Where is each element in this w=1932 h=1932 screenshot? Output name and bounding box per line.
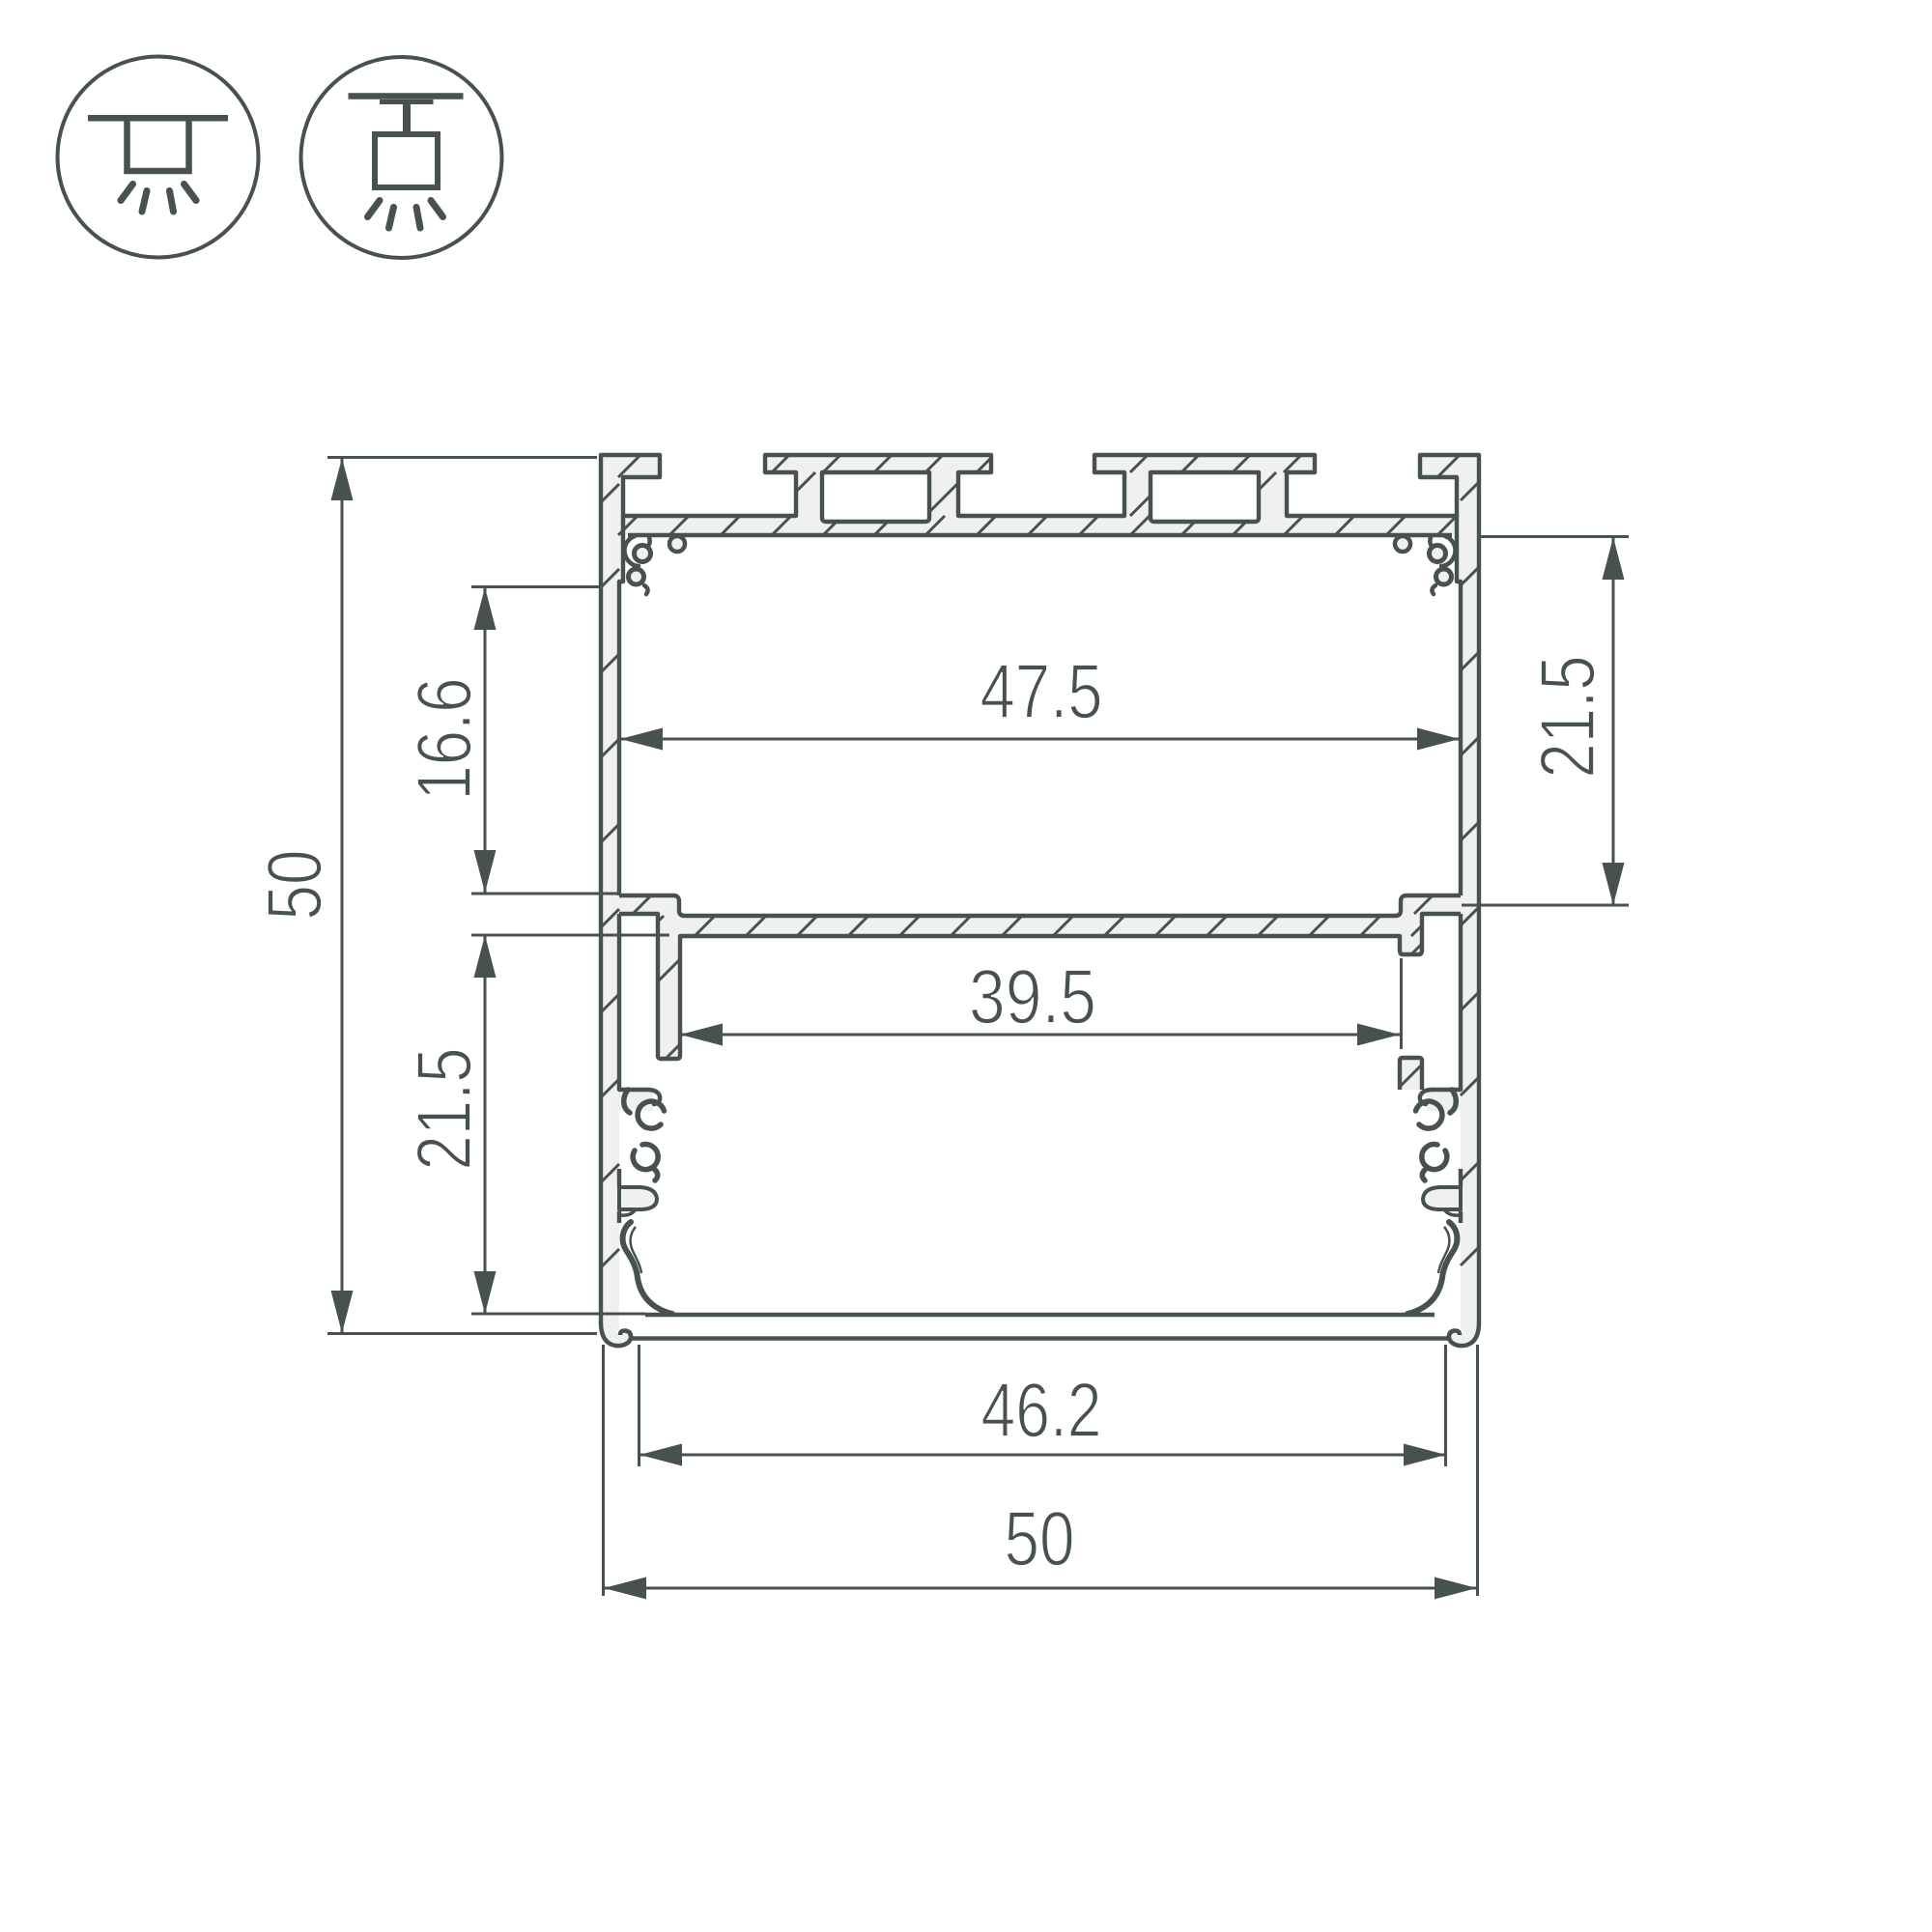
svg-text:21.5: 21.5: [1524, 656, 1610, 779]
svg-text:21.5: 21.5: [401, 1048, 487, 1171]
svg-text:16.6: 16.6: [401, 678, 487, 801]
svg-text:46.2: 46.2: [981, 1367, 1102, 1453]
svg-text:50: 50: [1005, 1495, 1075, 1581]
svg-text:39.5: 39.5: [969, 953, 1096, 1039]
svg-text:47.5: 47.5: [980, 648, 1103, 734]
svg-text:50: 50: [251, 850, 337, 921]
